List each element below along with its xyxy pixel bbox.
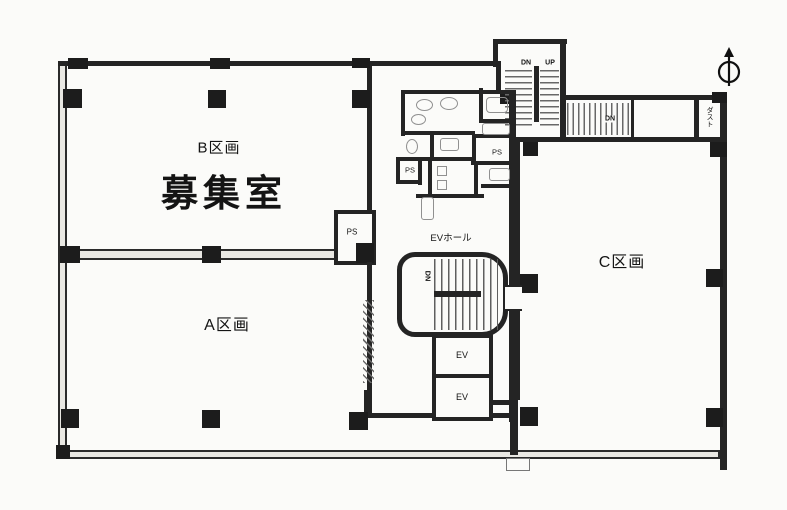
wall-c-left xyxy=(512,137,520,400)
ps-label: PS xyxy=(347,228,358,237)
fixture xyxy=(489,168,510,181)
column xyxy=(202,410,220,428)
ps-box-block xyxy=(356,243,374,263)
dn-label: DN xyxy=(521,60,531,67)
core-wall xyxy=(401,90,515,94)
dust-label: ダスト xyxy=(704,107,714,128)
column xyxy=(210,58,230,69)
stair-wall-right xyxy=(560,39,566,141)
core-wall xyxy=(396,157,476,161)
core-wall xyxy=(481,184,515,188)
wall-c-left-lower xyxy=(510,400,518,455)
floor-plan: PS DN UP xyxy=(0,0,787,510)
column xyxy=(520,274,538,293)
core-wall xyxy=(428,161,432,197)
fixture xyxy=(486,97,508,113)
section-c-label: C区画 xyxy=(599,248,646,272)
fixture xyxy=(482,123,510,135)
north-arrow-icon xyxy=(708,44,752,92)
fixture xyxy=(437,166,447,176)
core-wall xyxy=(401,90,405,136)
fixture xyxy=(440,138,459,151)
column xyxy=(523,142,538,156)
fixture xyxy=(421,197,434,220)
stair-treads-right xyxy=(540,70,559,128)
column xyxy=(68,58,88,69)
dust-room-wall xyxy=(694,97,699,141)
column xyxy=(352,90,370,108)
column xyxy=(710,140,727,157)
fixture xyxy=(416,99,433,111)
fixture xyxy=(437,180,447,190)
column xyxy=(56,445,70,459)
fixture xyxy=(406,139,418,154)
column xyxy=(61,409,79,428)
ev-label: EV xyxy=(456,350,468,360)
column xyxy=(202,246,221,263)
core-wall xyxy=(479,88,483,121)
wall-divider-ba xyxy=(58,249,338,260)
wall-bottom xyxy=(58,450,720,459)
stair-center-wall xyxy=(534,66,539,122)
recruit-room-label: 募集室 xyxy=(161,163,287,217)
fixture xyxy=(440,97,458,110)
core-wall xyxy=(474,161,478,197)
column xyxy=(520,407,538,426)
column xyxy=(712,92,727,103)
up-label: UP xyxy=(545,60,555,67)
core-wall xyxy=(430,131,434,160)
dn-label: DN xyxy=(604,116,616,123)
fire-escape-treads xyxy=(567,103,630,135)
column xyxy=(60,246,80,263)
ev-hall-label: EVホール xyxy=(430,230,471,244)
column xyxy=(706,269,723,287)
fire-escape-wall xyxy=(631,99,634,139)
stair-door-notch xyxy=(505,285,522,311)
ev-shaft-divider xyxy=(432,374,493,378)
wall-b-right xyxy=(367,63,372,213)
core-wall xyxy=(396,180,422,184)
core-wall xyxy=(490,400,512,405)
fixture xyxy=(411,114,426,125)
entry-step xyxy=(506,458,530,471)
column xyxy=(706,408,723,427)
section-a-label: A区画 xyxy=(204,311,250,335)
ev-label: EV xyxy=(456,392,468,402)
vestibule-wall-top xyxy=(493,39,567,44)
column xyxy=(352,58,370,68)
wall-top-right xyxy=(562,95,727,100)
stair-wall-left-stub xyxy=(496,61,501,93)
section-b-label: B区画 xyxy=(197,137,240,158)
column xyxy=(63,89,82,108)
wall-top xyxy=(58,61,498,66)
lower-stair-landing-wall xyxy=(434,291,481,297)
column xyxy=(349,412,368,430)
wall-a-right-hatch xyxy=(363,300,374,383)
ps-label: PS xyxy=(405,166,415,175)
column xyxy=(208,90,226,108)
dn-label: DN xyxy=(424,270,433,283)
ps-label: PS xyxy=(492,148,502,157)
core-wall xyxy=(403,131,475,135)
